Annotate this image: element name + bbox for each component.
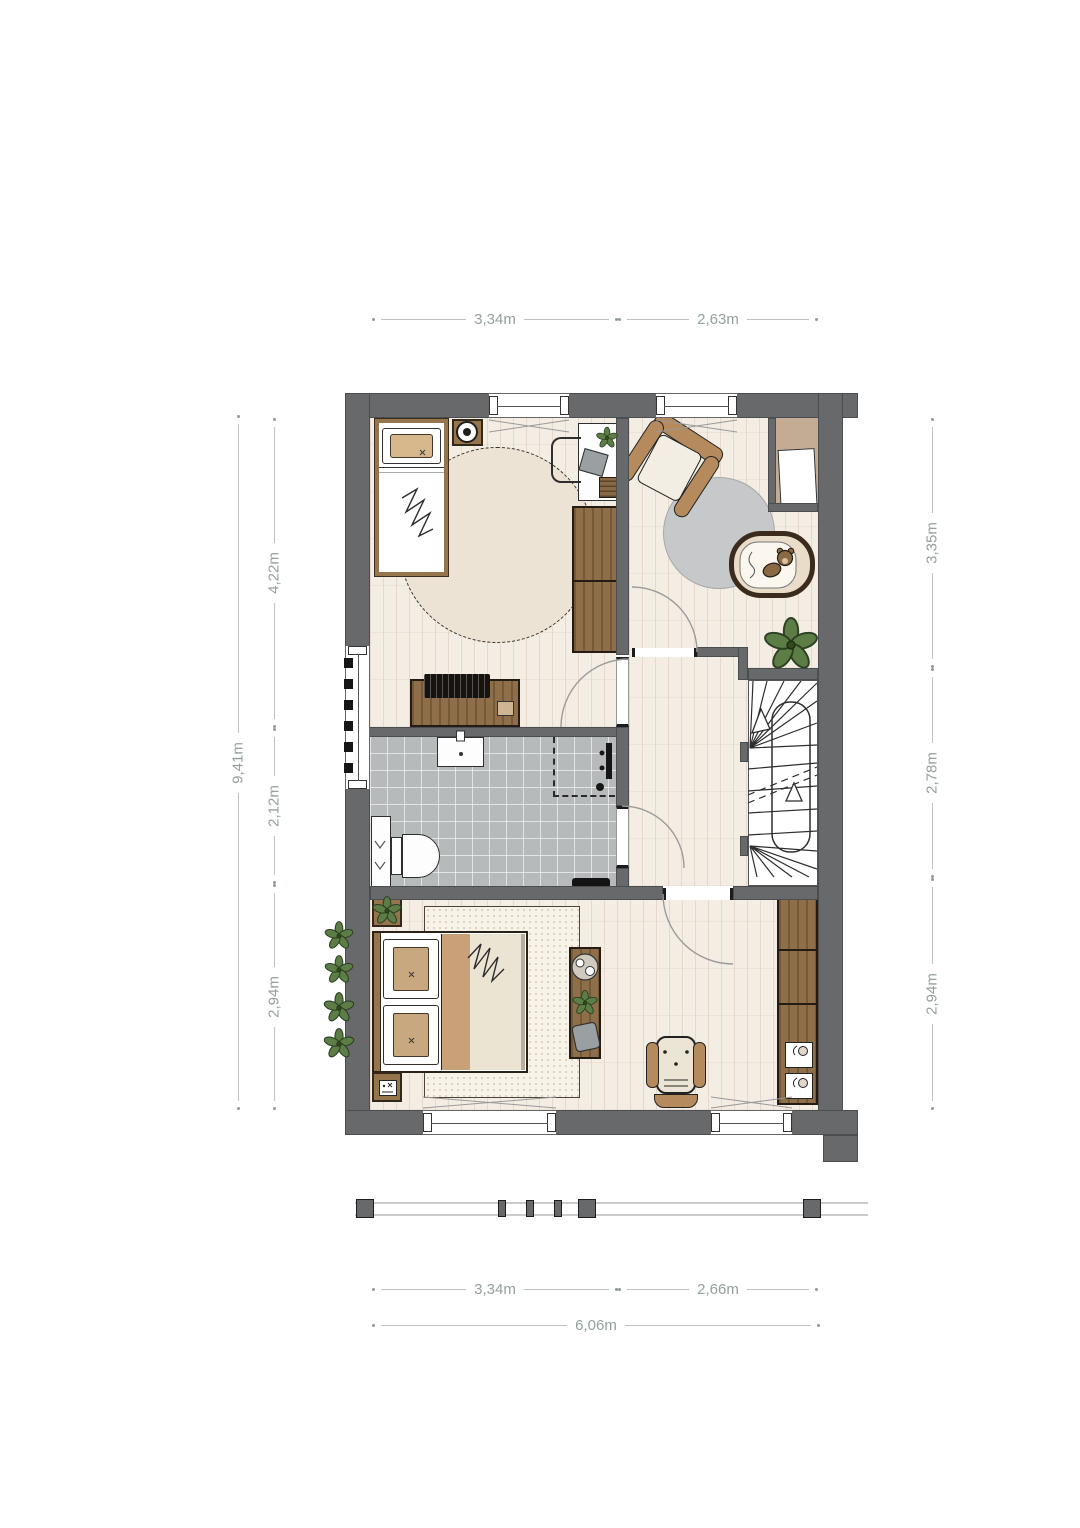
window-post [728, 396, 737, 415]
wardrobe-divider [779, 949, 816, 951]
window-vent-block [344, 679, 353, 689]
dimension-endpoint [817, 1324, 820, 1327]
dimension-label: 2,66m [695, 1282, 741, 1297]
dimension-labelbox: 2,12m [267, 782, 281, 830]
wall-niche-bottom [768, 503, 818, 512]
dimension-labelbox: 2,94m [925, 970, 939, 1018]
window-post [348, 780, 367, 789]
window-bottom-master-right [710, 1110, 793, 1135]
dimension-right-seg-3: 2,94m [925, 878, 939, 1110]
wall-niche-left [768, 418, 776, 512]
floor-plan: 3,34m 2,63m 9,41m 4,22m 2,12m 2,94m 3,35… [0, 0, 1080, 1528]
dimension-endpoint [237, 415, 240, 418]
dimension-labelbox: 2,94m [267, 973, 281, 1021]
shelf-box [785, 1042, 813, 1068]
wardrobe-divider [574, 580, 616, 582]
wardrobe-divider [779, 1003, 816, 1005]
nightstand-bottom [372, 1072, 402, 1102]
facade-line-upper [355, 1202, 868, 1204]
dimension-line [238, 424, 239, 733]
wall-master-north-right [733, 886, 818, 900]
wall-bedroom1-landing [616, 418, 629, 655]
crib [729, 531, 815, 598]
dimension-label: 4,22m [267, 552, 282, 594]
floor-landing [629, 647, 748, 886]
dimension-line [932, 803, 933, 869]
window-bottom-master-left [422, 1110, 557, 1135]
dimension-line [381, 1289, 466, 1290]
dimension-label: 2,94m [925, 973, 940, 1015]
bathroom-radiator [371, 816, 391, 888]
dimension-line [932, 427, 933, 513]
door-leaf-bedroom-1 [616, 657, 629, 727]
door-threshold-nursery [632, 648, 697, 657]
pillow-inner [393, 1013, 429, 1057]
dimension-line [274, 603, 275, 719]
dimension-label: 2,78m [925, 752, 940, 794]
dimension-line [274, 1027, 275, 1101]
dimension-endpoint [273, 884, 276, 887]
dimension-line [932, 573, 933, 659]
wall-stair-connector [738, 647, 748, 680]
wall-bathroom-north [365, 727, 628, 737]
dimension-line [932, 887, 933, 964]
bed-headboard [374, 933, 381, 1071]
armchair-arm [693, 1042, 706, 1088]
dimension-line [274, 836, 275, 875]
shelf-box [785, 1073, 813, 1099]
lamp-center [463, 428, 471, 436]
facade-post [803, 1199, 821, 1218]
dimension-top-left: 3,34m [372, 312, 618, 326]
window-vent-block [344, 721, 353, 731]
dimension-endpoint [815, 318, 818, 321]
dimension-line [747, 1289, 809, 1290]
wall-exterior-top [345, 393, 858, 418]
wall-stub-bottom-right [823, 1135, 858, 1162]
dimension-line [238, 793, 239, 1102]
master-armchair [646, 1036, 706, 1108]
dimension-bottom-overall: 6,06m [372, 1318, 820, 1332]
dimension-left-seg-3: 2,94m [267, 884, 281, 1110]
stair-balustrade-stub [740, 836, 748, 856]
window-vent-block [344, 700, 353, 710]
dimension-top-right: 2,63m [618, 312, 818, 326]
duvet-fold-line [379, 467, 444, 468]
window-post [489, 396, 498, 415]
window-post [348, 646, 367, 655]
nightstand-top [372, 897, 402, 927]
dimension-label: 3,34m [472, 312, 518, 327]
dimension-label: 9,41m [231, 742, 246, 784]
dimension-bottom-right: 2,66m [618, 1282, 818, 1296]
bed-duvet [470, 934, 525, 1070]
dimension-line [524, 319, 609, 320]
facade-line-lower [355, 1214, 868, 1216]
armchair-cushion [656, 1036, 696, 1094]
dimension-labelbox: 4,22m [267, 549, 281, 597]
bed-pillow [383, 1005, 439, 1065]
facade-post-small [554, 1200, 562, 1217]
dimension-line [932, 1024, 933, 1101]
window-post [560, 396, 569, 415]
dimension-endpoint [931, 878, 934, 881]
dimension-left-overall: 9,41m [231, 415, 245, 1110]
window-post [547, 1113, 556, 1132]
single-bed [375, 419, 448, 576]
window-vent-block [344, 763, 353, 773]
dimension-line [274, 737, 275, 776]
dimension-line [381, 1325, 567, 1326]
dimension-label: 3,34m [472, 1282, 518, 1297]
bed-throw [441, 934, 472, 1070]
facade-post-small [498, 1200, 506, 1217]
dimension-line [627, 1289, 689, 1290]
dimension-endpoint [273, 728, 276, 731]
floor-stairwell [748, 680, 818, 886]
dimension-right-seg-1: 3,35m [925, 418, 939, 668]
bed-pillow [383, 939, 439, 999]
dimension-labelbox: 2,78m [925, 749, 939, 797]
washbasin [437, 737, 484, 767]
facade-post [578, 1199, 596, 1218]
dimension-endpoint [273, 418, 276, 421]
dimension-endpoint [618, 318, 621, 321]
armchair-base [654, 1094, 698, 1108]
dimension-line [625, 1325, 811, 1326]
dimension-line [524, 1289, 609, 1290]
dimension-label: 2,63m [695, 312, 741, 327]
dimension-left-seg-2: 2,12m [267, 728, 281, 884]
changing-pad [778, 448, 818, 506]
wall-exterior-right [818, 393, 843, 1135]
window-post [656, 396, 665, 415]
duvet-fold-line [379, 472, 444, 473]
dimension-bottom-left: 3,34m [372, 1282, 618, 1296]
console-table [569, 947, 601, 1059]
dimension-labelbox: 9,41m [231, 739, 245, 787]
window-vent-block [344, 742, 353, 752]
dimension-endpoint [372, 318, 375, 321]
dresser-box [497, 701, 514, 716]
wardrobe-master [777, 893, 818, 1105]
desk-chair [551, 437, 581, 483]
window-top-bedroom-1 [488, 393, 570, 418]
pillow-inner [393, 947, 429, 991]
dimension-endpoint [372, 1288, 375, 1291]
dimension-labelbox: 3,35m [925, 519, 939, 567]
dimension-endpoint [931, 418, 934, 421]
dimension-label: 2,94m [267, 976, 282, 1018]
armchair-arm [646, 1042, 659, 1088]
dimension-endpoint [815, 1288, 818, 1291]
dimension-endpoint [273, 1107, 276, 1110]
window-post [423, 1113, 432, 1132]
dimension-endpoint [618, 1288, 621, 1291]
dimension-endpoint [931, 1107, 934, 1110]
wall-stair-north [748, 668, 818, 680]
bed-pillow [382, 428, 441, 464]
window-post [711, 1113, 720, 1132]
dimension-label: 6,06m [573, 1318, 619, 1333]
dimension-endpoint [931, 668, 934, 671]
toilet-tank [391, 837, 402, 875]
dimension-label: 3,35m [925, 522, 940, 564]
stereo-unit [424, 674, 490, 698]
window-top-nursery [655, 393, 738, 418]
dimension-line [747, 319, 809, 320]
pillow-inner [390, 434, 433, 458]
facade-post-small [526, 1200, 534, 1217]
dimension-line [274, 893, 275, 967]
dimension-line [274, 427, 275, 543]
window-post [783, 1113, 792, 1132]
wall-master-north-left [370, 886, 663, 900]
dimension-line [627, 319, 689, 320]
shower-area [553, 737, 615, 797]
dimension-line [932, 677, 933, 743]
dimension-endpoint [237, 1107, 240, 1110]
window-vent-block [344, 658, 353, 668]
door-leaf-bathroom [616, 806, 629, 868]
stair-balustrade-stub [740, 742, 748, 762]
dimension-endpoint [372, 1324, 375, 1327]
facade-post [356, 1199, 374, 1218]
dimension-left-seg-1: 4,22m [267, 418, 281, 728]
dimension-right-seg-2: 2,78m [925, 668, 939, 878]
dimension-line [381, 319, 466, 320]
wall-bathroom-east-upper [616, 727, 629, 806]
table-lamp [456, 421, 478, 443]
double-bed [372, 931, 528, 1073]
dimension-label: 2,12m [267, 785, 282, 827]
door-threshold-master [663, 888, 733, 900]
wardrobe-bedroom-1 [572, 506, 618, 653]
